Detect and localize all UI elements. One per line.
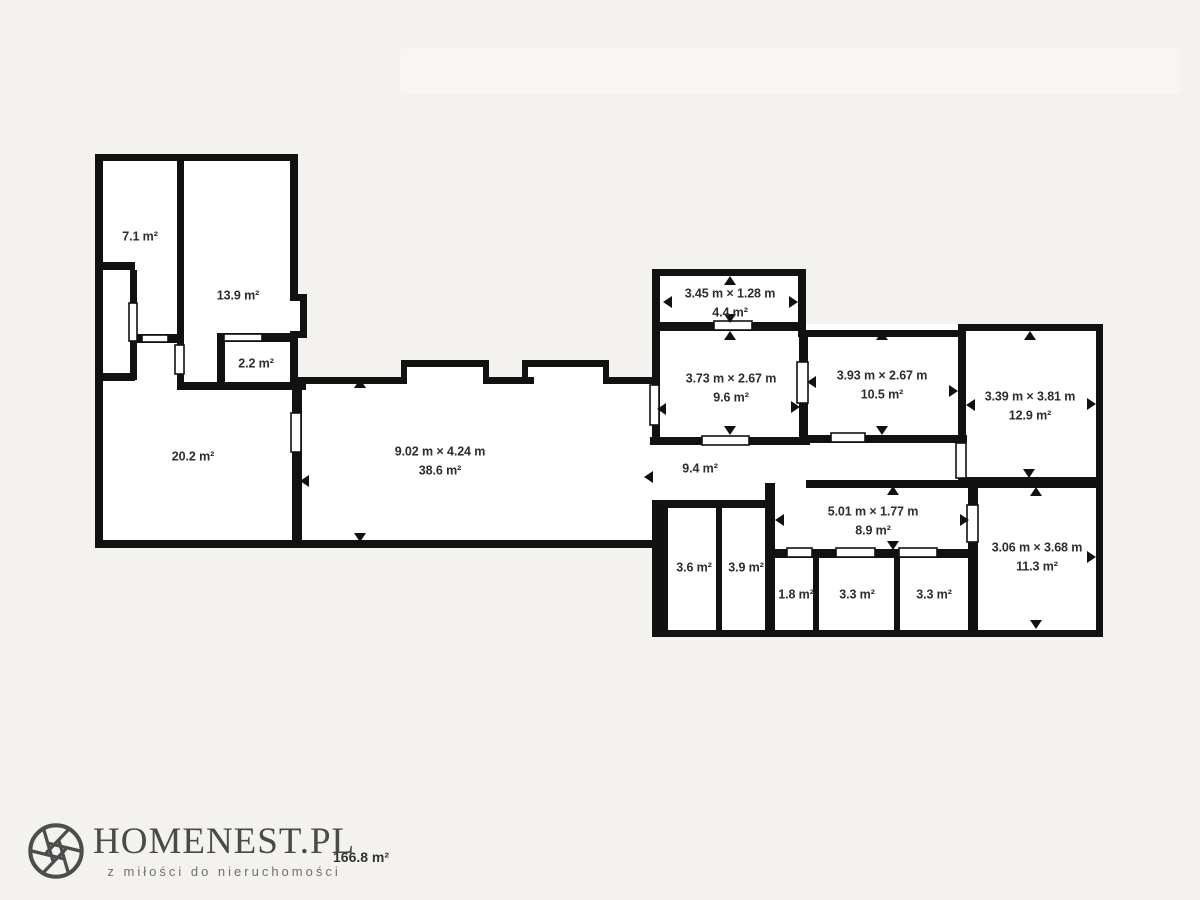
window-symbol [831, 433, 865, 442]
room-label-12-9: 3.39 m × 3.81 m12.9 m² [985, 387, 1076, 425]
room-label-7-1: 7.1 m² [122, 228, 158, 247]
room-label-3-3-a: 3.3 m² [839, 586, 875, 605]
room-label-3-3-b: 3.3 m² [916, 586, 952, 605]
room-label-8-9: 5.01 m × 1.77 m8.9 m² [828, 502, 919, 540]
door-symbol [836, 548, 875, 557]
door-symbol [291, 413, 301, 452]
room-label-11-3: 3.06 m × 3.68 m11.3 m² [992, 538, 1083, 576]
room-label-10-5: 3.93 m × 2.67 m10.5 m² [837, 366, 928, 404]
window-symbol [714, 321, 752, 330]
room-label-9-4: 9.4 m² [682, 460, 718, 479]
floorplan-page: 7.1 m² 13.9 m² 2.2 m² 20.2 m² 9.02 m × 4… [0, 0, 1200, 900]
room-fills [98, 155, 1103, 635]
door-symbol [650, 385, 659, 425]
door-symbol [797, 362, 808, 403]
room-label-4-4: 3.45 m × 1.28 m4.4 m² [685, 284, 776, 322]
room-label-3-6: 3.6 m² [676, 559, 712, 578]
door-symbol [956, 443, 966, 478]
room-label-3-9: 3.9 m² [728, 559, 764, 578]
brand-name: HOMENEST.PL [93, 823, 355, 862]
aperture-logo-icon [25, 820, 87, 882]
room-label-9-6: 3.73 m × 2.67 m9.6 m² [686, 369, 777, 407]
door-symbol [702, 436, 749, 445]
room-label-1-8: 1.8 m² [778, 586, 814, 605]
door-symbol [142, 335, 168, 342]
room-label-13-9: 13.9 m² [217, 287, 259, 306]
door-symbol [899, 548, 937, 557]
door-symbol [967, 505, 978, 542]
brand-text-block: HOMENEST.PL z miłości do nieruchomości [93, 823, 355, 880]
room-label-20-2: 20.2 m² [172, 448, 214, 467]
door-symbol [175, 345, 184, 374]
window-symbol [129, 303, 137, 341]
room-label-2-2: 2.2 m² [238, 355, 274, 374]
window-symbol [224, 334, 262, 341]
room-label-38-6: 9.02 m × 4.24 m38.6 m² [395, 442, 486, 480]
brand-tagline: z miłości do nieruchomości [107, 864, 340, 879]
total-area: 166.8 m² [333, 849, 389, 865]
footer-branding: HOMENEST.PL z miłości do nieruchomości [25, 820, 355, 882]
door-symbol [787, 548, 812, 557]
